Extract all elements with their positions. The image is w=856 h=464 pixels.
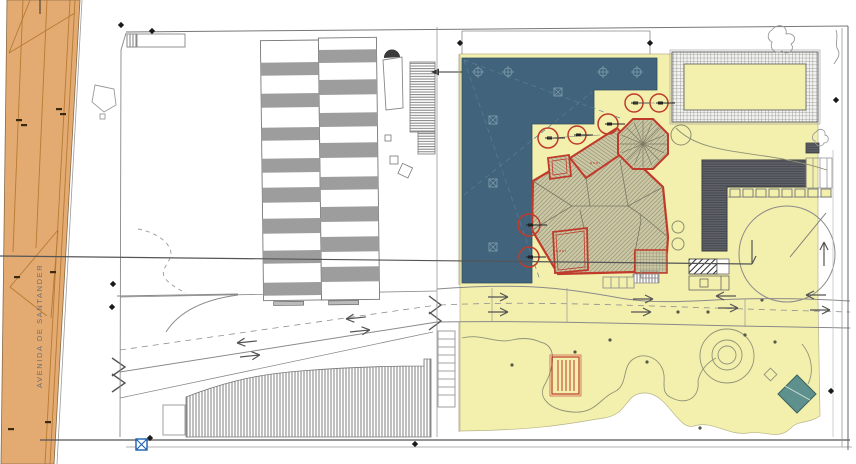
shrub-dot-icon: [698, 426, 701, 429]
shrub-dot-icon: [773, 340, 776, 343]
entrance-steps: [633, 274, 659, 283]
ramp-hatched-lower: [418, 132, 435, 154]
dimension-tick: [50, 271, 56, 273]
shrub-dot-icon: [743, 333, 746, 336]
ramp-hatched: [410, 62, 435, 132]
service-annex-roof: [806, 143, 819, 153]
tower-roof-radials: [620, 121, 666, 167]
kiosk-outline: [383, 57, 403, 110]
dimension-tick: [14, 276, 20, 278]
site-plan-drawing: AVENIDA DE SANTANDER: [0, 0, 856, 464]
shrub-dot-icon: [645, 360, 648, 363]
stairs: [438, 331, 455, 407]
shrub-dot-icon: [510, 363, 513, 366]
dimension-tick: [16, 119, 22, 121]
dimension-tick: [21, 124, 27, 126]
shrub-dot-icon: [676, 310, 679, 313]
embankment-notch: [163, 405, 185, 435]
dimension-tick: [56, 108, 62, 110]
street-name-label: AVENIDA DE SANTANDER: [35, 264, 44, 388]
shrub-dot-icon: [706, 310, 709, 313]
site-plan-page: AVENIDA DE SANTANDER: [0, 0, 856, 464]
shrub-dot-icon: [608, 338, 611, 341]
annex-terrace-grid: [635, 250, 667, 273]
annex-northwest: [548, 155, 571, 179]
dimension-tick: [45, 421, 51, 423]
pergola-deck: [670, 50, 820, 124]
drain-symbol: [136, 439, 147, 450]
dimension-tick: [8, 428, 14, 430]
shrub-dot-icon: [573, 350, 576, 353]
dimension-tick: [60, 113, 66, 115]
residential-blocks: [260, 37, 379, 305]
